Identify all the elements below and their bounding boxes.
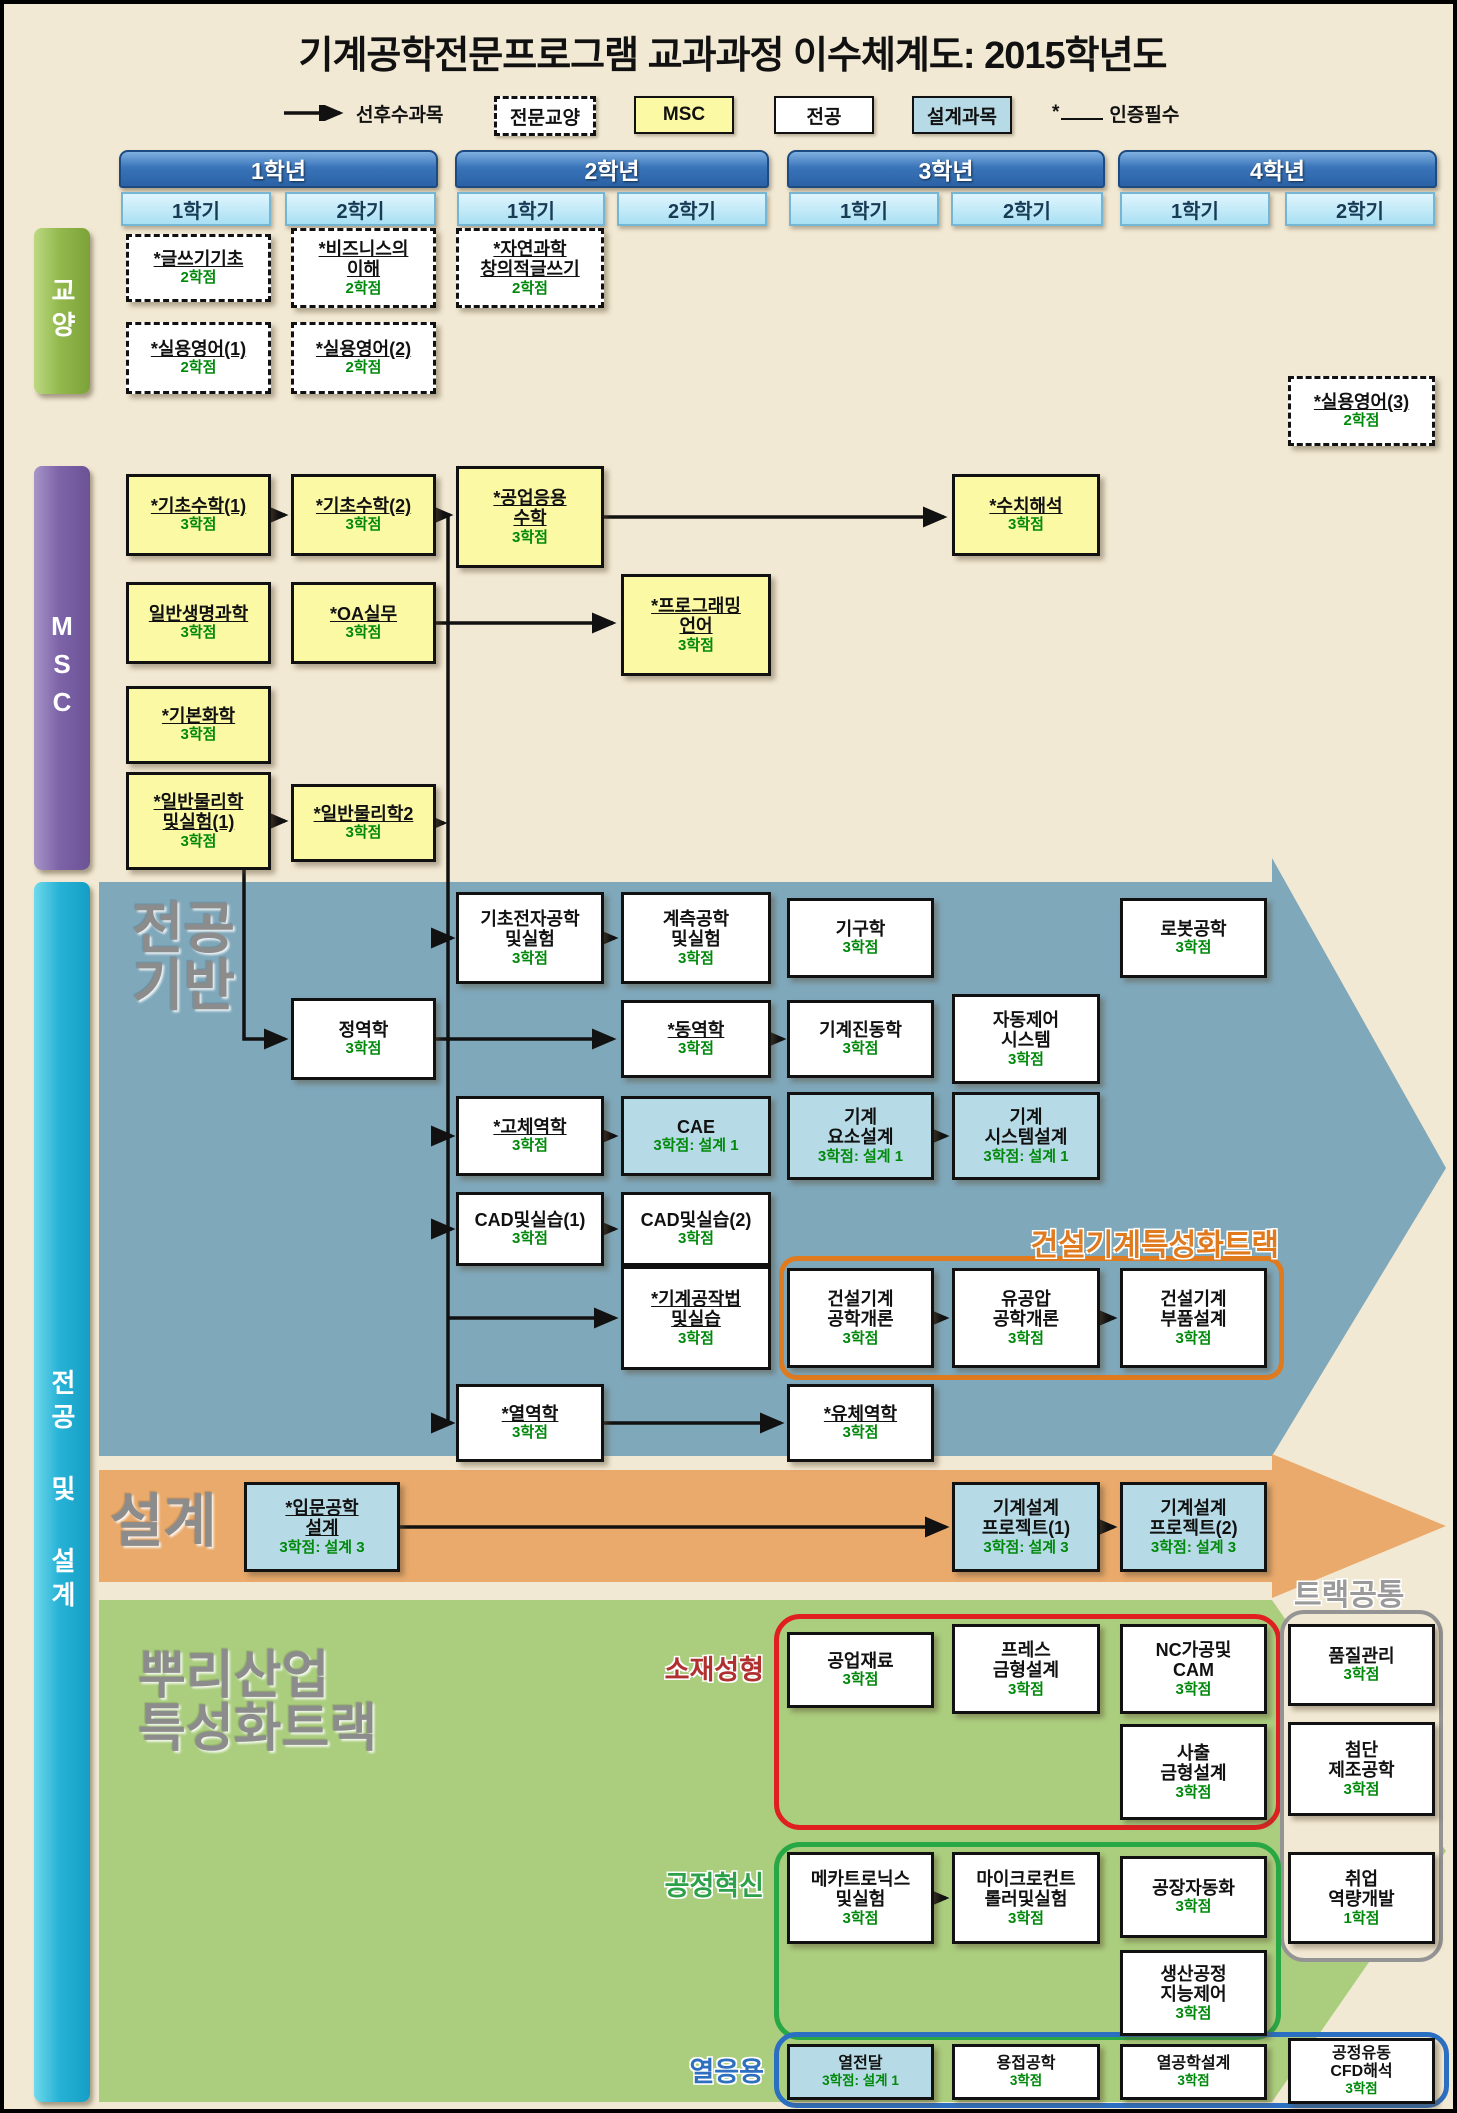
course-inst: 계측공학 및실험3학점 [621,892,771,984]
course-materials: 공업재료3학점 [787,1632,934,1708]
course-introdesign: *입문공학 설계3학점: 설계 3 [244,1482,400,1572]
course-elements: 기계 요소설계3학점: 설계 1 [787,1092,934,1180]
course-phys1: *일반물리학 및실험(1)3학점 [126,772,271,870]
course-thermo: *열역학3학점 [456,1384,604,1462]
course-eng3: *실용영어(3)2학점 [1288,376,1435,446]
course-cad1: CAD및실습(1)3학점 [456,1192,604,1266]
course-business: *비즈니스의 이해2학점 [291,228,436,308]
course-cad2: CAD및실습(2)3학점 [621,1192,771,1266]
course-bio: 일반생명과학3학점 [126,582,271,664]
course-solid: *고체역학3학점 [456,1096,604,1176]
course-proj1: 기계설계 프로젝트(1)3학점: 설계 3 [952,1482,1100,1572]
curriculum-flowchart: 전공 기반 설계 뿌리산업 특성화트랙 기계공학전문프로그램 교과과정 이수체계… [0,0,1457,2113]
course-thermdesign: 열공학설계3학점 [1120,2044,1267,2100]
course-mecha: 메카트로닉스 및실험3학점 [787,1852,934,1944]
course-factory: 공장자동화3학점 [1120,1856,1267,1938]
course-eng2: *실용영어(2)2학점 [291,322,436,394]
course-constr-parts: 건설기계 부품설계3학점 [1120,1268,1267,1368]
course-vibration: 기계진동학3학점 [787,1000,934,1078]
course-elec: 기초전자공학 및실험3학점 [456,892,604,984]
course-sysdesign: 기계 시스템설계3학점: 설계 1 [952,1092,1100,1180]
course-heat: 열전달3학점: 설계 1 [787,2044,934,2100]
course-statics: 정역학3학점 [291,998,436,1080]
course-numeric: *수치해석3학점 [952,474,1100,556]
course-quality: 품질관리3학점 [1288,1624,1435,1706]
course-cfd: 공정유동 CFD해석3학점 [1288,2038,1435,2104]
course-sciwriting: *자연과학 창의적글쓰기2학점 [456,228,604,308]
course-welding: 용접공학3학점 [952,2044,1100,2100]
course-engmath: *공업응용 수학3학점 [456,466,604,568]
course-career: 취업 역량개발1학점 [1288,1852,1435,1944]
course-math2: *기초수학(2)3학점 [291,474,436,556]
course-cae: CAE3학점: 설계 1 [621,1096,771,1176]
course-injection: 사출 금형설계3학점 [1120,1724,1267,1820]
course-prog: *프로그래밍 언어3학점 [621,574,771,676]
course-dynamics: *동역학3학점 [621,1000,771,1078]
course-chem: *기본화학3학점 [126,686,271,764]
course-press: 프레스 금형설계3학점 [952,1624,1100,1714]
course-fluid: *유체역학3학점 [787,1384,934,1462]
course-hydraulics: 유공압 공학개론3학점 [952,1268,1100,1368]
course-oa: *OA실무3학점 [291,582,436,664]
course-robot: 로봇공학3학점 [1120,898,1267,978]
course-micro: 마이크로컨트 롤러및실험3학점 [952,1852,1100,1944]
course-nc: NC가공및 CAM3학점 [1120,1624,1267,1714]
course-prodintel: 생산공정 지능제어3학점 [1120,1950,1267,2036]
course-proj2: 기계설계 프로젝트(2)3학점: 설계 3 [1120,1482,1267,1572]
course-constr-intro: 건설기계 공학개론3학점 [787,1268,934,1368]
course-machining: *기계공작법 및실습3학점 [621,1266,771,1370]
course-autocontrol: 자동제어 시스템3학점 [952,994,1100,1084]
course-writing: *글쓰기기초2학점 [126,234,271,302]
course-eng1: *실용영어(1)2학점 [126,322,271,394]
course-advmfg: 첨단 제조공학3학점 [1288,1722,1435,1816]
course-phys2: *일반물리학23학점 [291,784,436,862]
course-kinematics: 기구학3학점 [787,898,934,978]
course-math1: *기초수학(1)3학점 [126,474,271,556]
